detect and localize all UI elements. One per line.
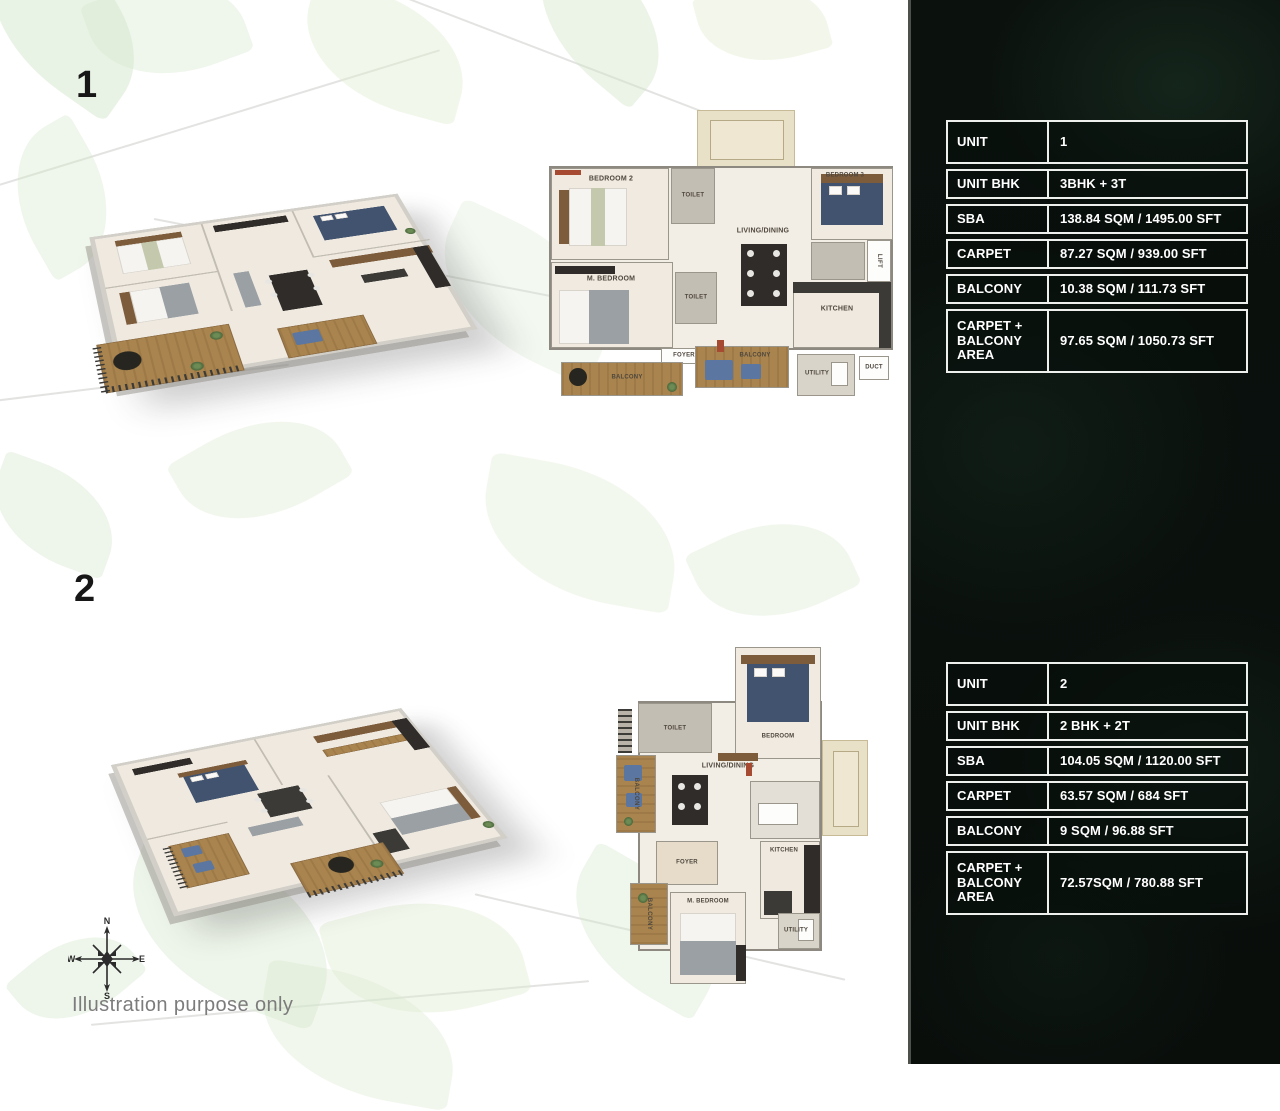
table-row: UNIT 2 (946, 662, 1248, 706)
row-label: SBA (948, 206, 1049, 232)
row-label: CARPET + BALCONY AREA (948, 311, 1049, 371)
chair (307, 272, 316, 277)
unit-1-3d-floor (89, 194, 477, 389)
table-row: BALCONY 9 SQM / 96.88 SFT (946, 816, 1248, 846)
table-row: SBA 104.05 SQM / 1120.00 SFT (946, 746, 1248, 776)
room-label: BALCONY (739, 352, 770, 360)
chair (747, 290, 754, 297)
pillow (754, 668, 767, 677)
leaf-decoration (289, 0, 482, 126)
unit-1-number: 1 (76, 66, 97, 104)
table-row: UNIT 1 (946, 120, 1248, 164)
kitchen-counter (879, 293, 891, 348)
chair (678, 783, 685, 790)
illustration-footnote: Illustration purpose only (72, 994, 293, 1017)
table-row: UNIT BHK 3BHK + 3T (946, 169, 1248, 199)
room-label: TOILET (685, 294, 707, 302)
row-label: BALCONY (948, 276, 1049, 302)
leaf-decoration (507, 0, 694, 110)
table-row: UNIT BHK 2 BHK + 2T (946, 711, 1248, 741)
right-dark-panel: UNIT 1 UNIT BHK 3BHK + 3T SBA 138.84 SQM… (908, 0, 1280, 1064)
compass-north: N (104, 916, 111, 926)
leaf-decoration (692, 0, 834, 79)
terrace (822, 740, 868, 836)
chair (694, 783, 701, 790)
plant (624, 817, 633, 826)
leaf-decoration (470, 452, 690, 615)
kitchen-counter (764, 891, 792, 915)
row-label: UNIT (948, 122, 1049, 162)
compass-east: E (139, 954, 145, 964)
unit-1-2d-plan: BEDROOM 2 TOILET LIVING/DINING BEDROOM 3… (545, 110, 895, 400)
unit-2-number: 2 (74, 570, 95, 608)
bed-headboard (559, 190, 569, 244)
terrace (697, 110, 795, 168)
chair (747, 270, 754, 277)
row-value: 9 SQM / 96.88 SFT (1049, 818, 1246, 844)
room-label: KITCHEN (821, 306, 854, 315)
kitchen-island (361, 269, 409, 283)
row-label: CARPET + BALCONY AREA (948, 853, 1049, 913)
chair (747, 250, 754, 257)
kitchen-counter (793, 282, 891, 293)
compass-west: W (68, 954, 76, 964)
room-label: M. BEDROOM (687, 898, 729, 906)
pillow (847, 186, 860, 195)
row-value: 87.27 SQM / 939.00 SFT (1049, 241, 1246, 267)
room-toilet (811, 242, 865, 280)
plant (481, 820, 496, 829)
wall (254, 739, 283, 785)
room-label: UTILITY (784, 927, 808, 935)
door-marker (717, 340, 724, 352)
chair (694, 803, 701, 810)
unit-2-3d-render (90, 630, 520, 990)
table-row: CARPET + BALCONY AREA 72.57SQM / 780.88 … (946, 851, 1248, 915)
row-label: CARPET (948, 783, 1049, 809)
row-value: 3BHK + 3T (1049, 171, 1246, 197)
room-label: TOILET (682, 192, 704, 200)
room-label: TOILET (664, 725, 686, 733)
balcony-chair (741, 364, 761, 379)
dining-table (672, 775, 708, 825)
table-row: CARPET 63.57 SQM / 684 SFT (946, 781, 1248, 811)
room-label: FOYER (676, 859, 698, 867)
plant (404, 227, 417, 234)
row-value: 1 (1049, 122, 1246, 162)
duct-grill (618, 709, 632, 753)
unit-2-2d-plan: BEDROOM TOILET LIVING/DINING BALCONY KIT… (600, 645, 890, 995)
row-value: 10.38 SQM / 111.73 SFT (1049, 276, 1246, 302)
bed-blanket (680, 941, 736, 975)
plant (667, 382, 677, 392)
row-label: CARPET (948, 241, 1049, 267)
row-value: 72.57SQM / 780.88 SFT (1049, 853, 1246, 913)
balcony-sofa (705, 360, 733, 380)
sofa-gray (248, 817, 304, 837)
room-label: FOYER (673, 352, 695, 360)
row-value: 2 BHK + 2T (1049, 713, 1246, 739)
terrace-inner (710, 120, 784, 160)
wall-cabinet (555, 170, 581, 175)
row-label: UNIT (948, 664, 1049, 704)
bed-blanket (589, 290, 629, 344)
sideboard (718, 753, 758, 761)
row-value: 2 (1049, 664, 1246, 704)
row-value: 97.65 SQM / 1050.73 SFT (1049, 311, 1246, 371)
table-row: CARPET 87.27 SQM / 939.00 SFT (946, 239, 1248, 269)
bathtub (758, 803, 798, 825)
bed-throw (591, 188, 605, 246)
terrace-inner (833, 751, 859, 827)
chair (773, 270, 780, 277)
door-marker (746, 763, 752, 776)
wall (201, 224, 233, 311)
unit-1-spec-table: UNIT 1 UNIT BHK 3BHK + 3T SBA 138.84 SQM… (946, 120, 1248, 378)
room-label: BEDROOM 2 (589, 176, 633, 185)
table-row: BALCONY 10.38 SQM / 111.73 SFT (946, 274, 1248, 304)
row-value: 138.84 SQM / 1495.00 SFT (1049, 206, 1246, 232)
room-label: BEDROOM (762, 733, 795, 741)
unit-2-3d-floor (111, 708, 508, 916)
row-label: BALCONY (948, 818, 1049, 844)
wardrobe (736, 945, 746, 981)
leaf-decoration (0, 450, 131, 580)
table-row: SBA 138.84 SQM / 1495.00 SFT (946, 204, 1248, 234)
wardrobe (555, 266, 615, 274)
pillow (772, 668, 785, 677)
chair (773, 290, 780, 297)
pillow (829, 186, 842, 195)
row-label: UNIT BHK (948, 171, 1049, 197)
row-value: 63.57 SQM / 684 SFT (1049, 783, 1246, 809)
room-label: BALCONY (646, 898, 652, 930)
chair (773, 250, 780, 257)
leaf-decoration (684, 493, 862, 647)
media-wall (213, 215, 289, 232)
room-label: LIFT (876, 254, 882, 268)
bed-blue (313, 206, 398, 241)
row-label: UNIT BHK (948, 713, 1049, 739)
table-row: CARPET + BALCONY AREA 97.65 SQM / 1050.7… (946, 309, 1248, 373)
round-table (569, 368, 587, 386)
room-label: BALCONY (633, 778, 639, 810)
sofa-gray (233, 271, 261, 307)
room-label: LIVING/DINING (737, 228, 789, 237)
bed-headboard (741, 655, 815, 664)
room-label: BEDROOM 3 (826, 172, 864, 180)
room-label: KITCHEN (770, 847, 798, 855)
row-label: SBA (948, 748, 1049, 774)
chair (313, 286, 322, 291)
room-label: BALCONY (611, 374, 642, 382)
row-value: 104.05 SQM / 1120.00 SFT (1049, 748, 1246, 774)
compass-icon: N E S W (68, 916, 146, 1000)
appliance (831, 362, 848, 386)
unit-2-spec-table: UNIT 2 UNIT BHK 2 BHK + 2T SBA 104.05 SQ… (946, 662, 1248, 920)
room-label: M. BEDROOM (587, 276, 635, 285)
room-label: UTILITY (805, 370, 829, 378)
balcony-deck (277, 315, 377, 359)
unit-1-3d-render (70, 138, 482, 448)
kitchen-appliances (804, 845, 820, 915)
room-label: DUCT (865, 364, 882, 372)
wall (292, 211, 315, 257)
chair (678, 803, 685, 810)
